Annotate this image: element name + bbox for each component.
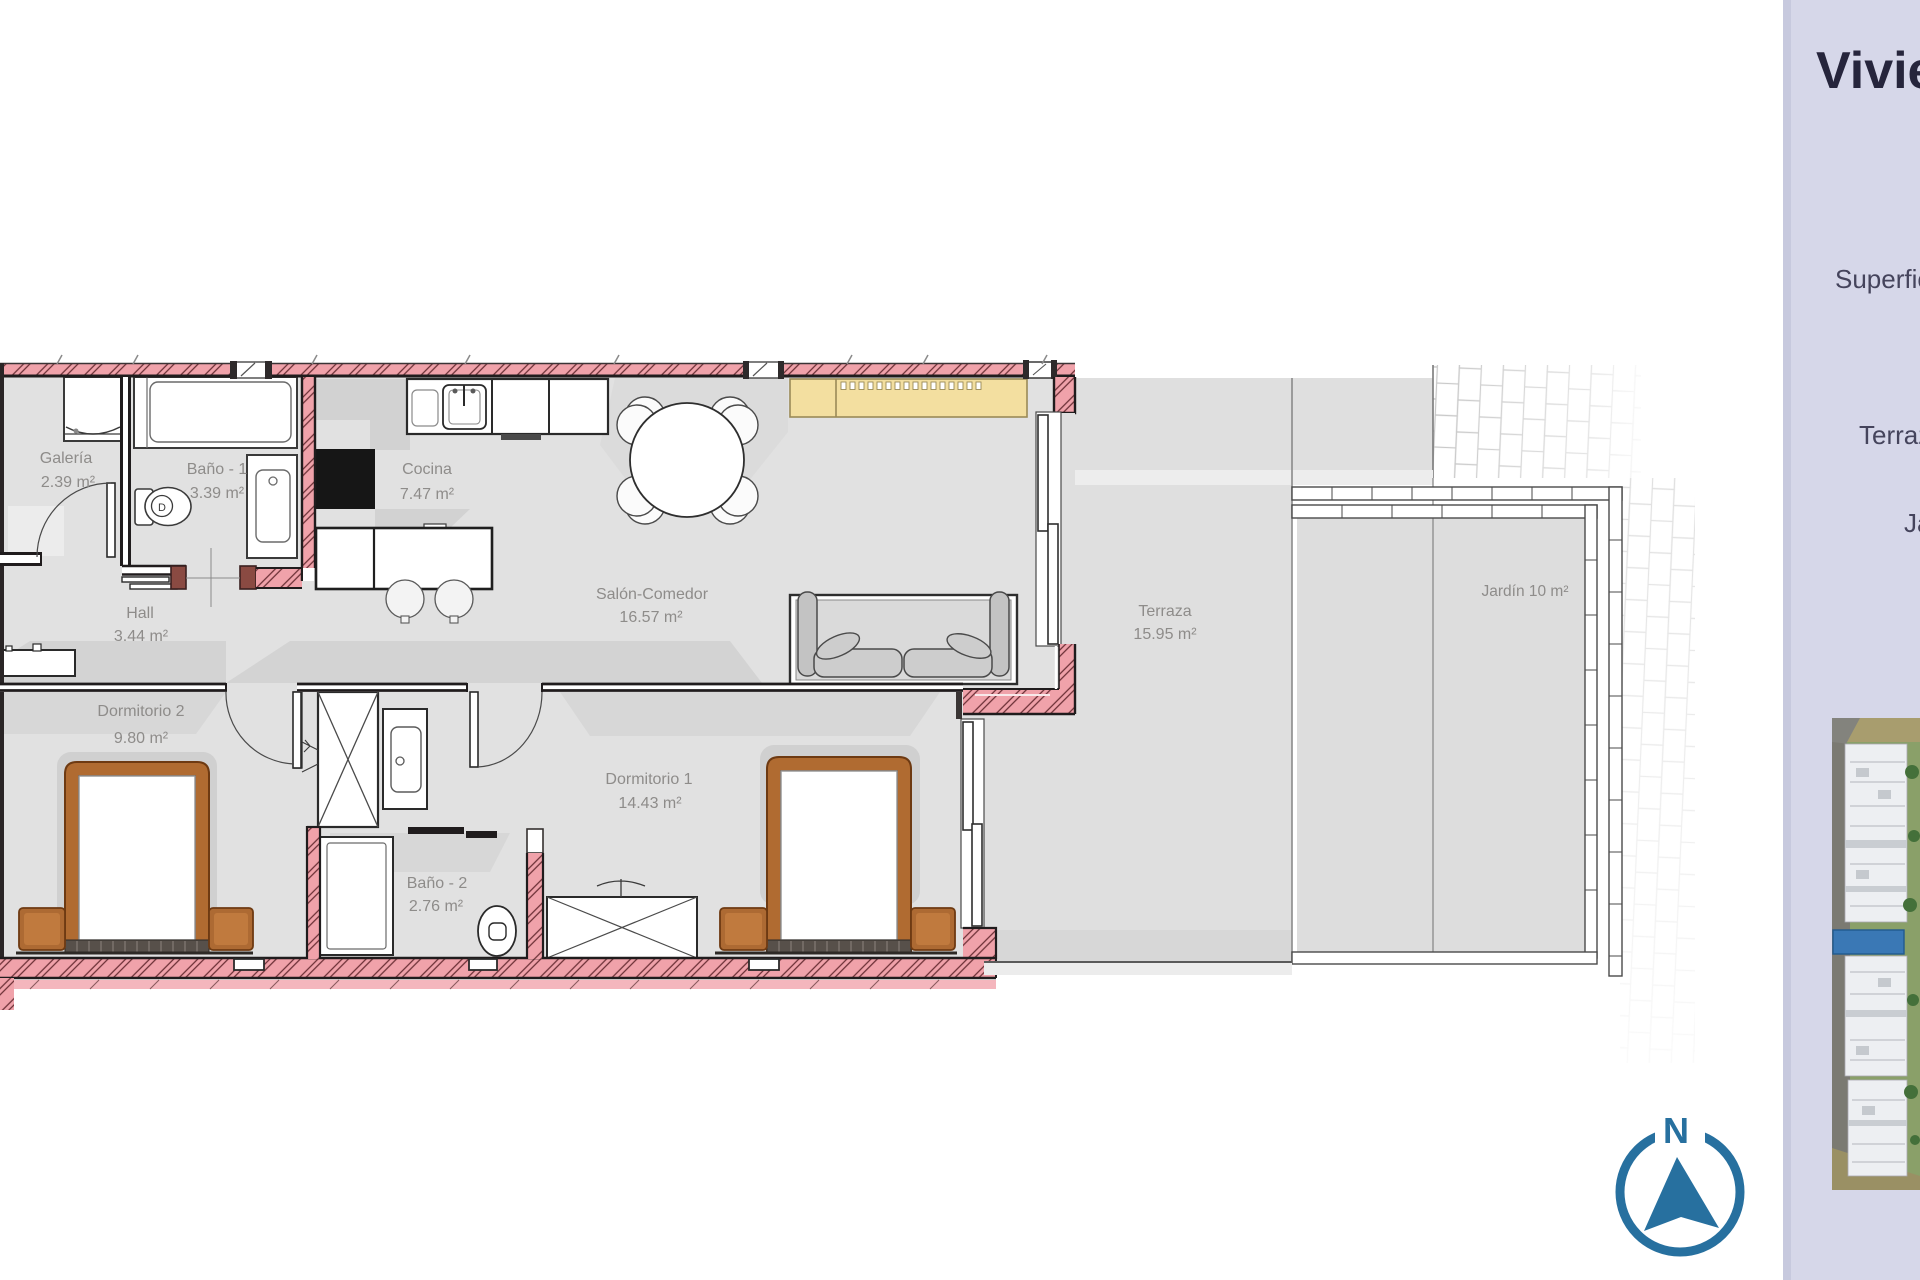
svg-text:Terraza: Terraza xyxy=(1138,603,1191,620)
svg-text:Dormitorio 1: Dormitorio 1 xyxy=(605,771,692,788)
svg-text:N: N xyxy=(1663,1110,1689,1151)
svg-text:3.44 m²: 3.44 m² xyxy=(114,628,169,645)
svg-text:Salón-Comedor: Salón-Comedor xyxy=(596,586,709,603)
svg-text:Jardín: Jardín xyxy=(1904,508,1920,538)
svg-text:9.80 m²: 9.80 m² xyxy=(114,730,169,747)
svg-text:16.57 m²: 16.57 m² xyxy=(619,609,683,626)
svg-text:Baño - 2: Baño - 2 xyxy=(407,875,468,892)
svg-text:7.47 m²: 7.47 m² xyxy=(400,486,455,503)
svg-text:Superficie: Superficie xyxy=(1835,264,1920,294)
svg-text:Terraza: Terraza xyxy=(1859,420,1920,450)
svg-text:3.39 m²: 3.39 m² xyxy=(190,485,245,502)
svg-text:Galería: Galería xyxy=(40,450,93,467)
svg-text:15.95 m²: 15.95 m² xyxy=(1133,626,1197,643)
svg-text:Baño - 1: Baño - 1 xyxy=(187,461,248,478)
svg-text:Cocina: Cocina xyxy=(402,461,452,478)
svg-text:Jardín 10 m²: Jardín 10 m² xyxy=(1481,583,1568,600)
svg-text:Hall: Hall xyxy=(126,605,154,622)
svg-text:14.43 m²: 14.43 m² xyxy=(618,795,682,812)
svg-text:Vivien: Vivien xyxy=(1816,42,1920,100)
svg-text:D: D xyxy=(158,502,166,514)
svg-text:Dormitorio 2: Dormitorio 2 xyxy=(97,703,184,720)
svg-text:2.39 m²: 2.39 m² xyxy=(41,474,96,491)
svg-text:2.76 m²: 2.76 m² xyxy=(409,898,464,915)
